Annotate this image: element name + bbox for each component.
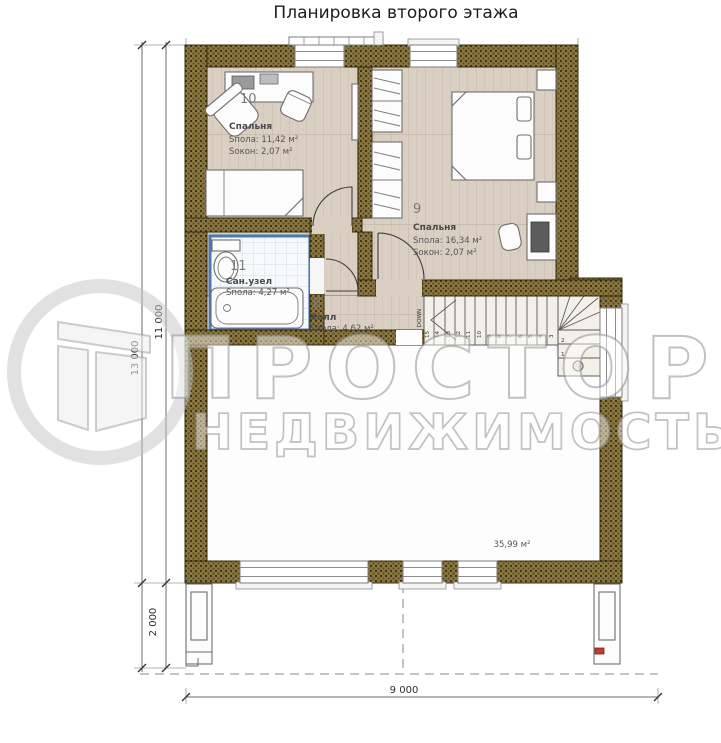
floor-plan-drawing: 13 000 11 000 2 000 9 000 — [0, 0, 721, 743]
wall-partition-upper — [358, 67, 372, 218]
room-number: 8 — [313, 296, 321, 311]
door-room9-opening — [376, 280, 422, 296]
door-room10-opening — [312, 216, 352, 234]
porch — [140, 584, 658, 674]
wall-room10-south — [185, 218, 312, 232]
room-floor-area: Sпола: 4,27 м² — [226, 288, 290, 298]
porch-post-right-accent — [595, 648, 604, 654]
room-number: 11 — [230, 259, 247, 274]
watermark-logo-pane-left — [58, 346, 88, 430]
bed-single-room10 — [206, 170, 303, 216]
floor-plan-page: Планировка второго этажа — [0, 0, 721, 743]
balcony-railing — [289, 37, 383, 45]
window-top-right — [410, 45, 457, 67]
open-area-label: 35,99 м² — [494, 540, 531, 550]
window-top-left — [295, 45, 344, 67]
wall-room9-south-west — [358, 280, 376, 296]
wall-left — [185, 45, 207, 583]
window-bottom-long — [240, 561, 368, 583]
wall-partition-lower — [358, 232, 372, 280]
watermark-tagline: НЕДВИЖИМОСТЬ — [192, 404, 721, 461]
room-name: Спальня — [229, 122, 272, 132]
window-bottom-mid — [403, 561, 442, 583]
desk-item-pc — [531, 222, 549, 252]
room-name: Сан.узел — [226, 277, 272, 287]
wall-right-upper — [556, 45, 578, 296]
wall-room9-south-east — [422, 280, 622, 296]
toilet-tank — [212, 240, 240, 251]
nightstand-bottom — [537, 182, 556, 202]
desk-item-monitor — [260, 74, 278, 84]
nightstand-top — [537, 70, 556, 90]
room-name: Спальня — [413, 223, 456, 233]
room-floor-area: Sпола: 11,42 м² — [229, 135, 298, 145]
room-number: 9 — [413, 202, 421, 217]
window-bottom-right — [458, 561, 497, 583]
dim-text-width: 9 000 — [390, 685, 419, 696]
dim-text-porch-depth: 2 000 — [148, 608, 159, 637]
porch-post-right-inner — [599, 592, 615, 640]
porch-post-left-inner — [191, 592, 207, 640]
watermark-logo-pane-right — [96, 352, 146, 431]
mirror-panel — [352, 84, 358, 140]
bed-pillow — [517, 97, 531, 121]
room-floor-area: Sпола: 16,34 м² — [413, 236, 482, 246]
wall-top — [185, 45, 578, 67]
balcony-post — [374, 32, 383, 45]
room-window-area: Sокон: 2,07 м² — [229, 147, 293, 157]
door-bathroom-opening — [310, 258, 324, 294]
bed-pillow — [517, 135, 531, 159]
room-number: 10 — [240, 92, 257, 107]
room-window-area: Sокон: 2,07 м² — [413, 248, 477, 258]
wall-room10-south-stub — [352, 218, 362, 232]
